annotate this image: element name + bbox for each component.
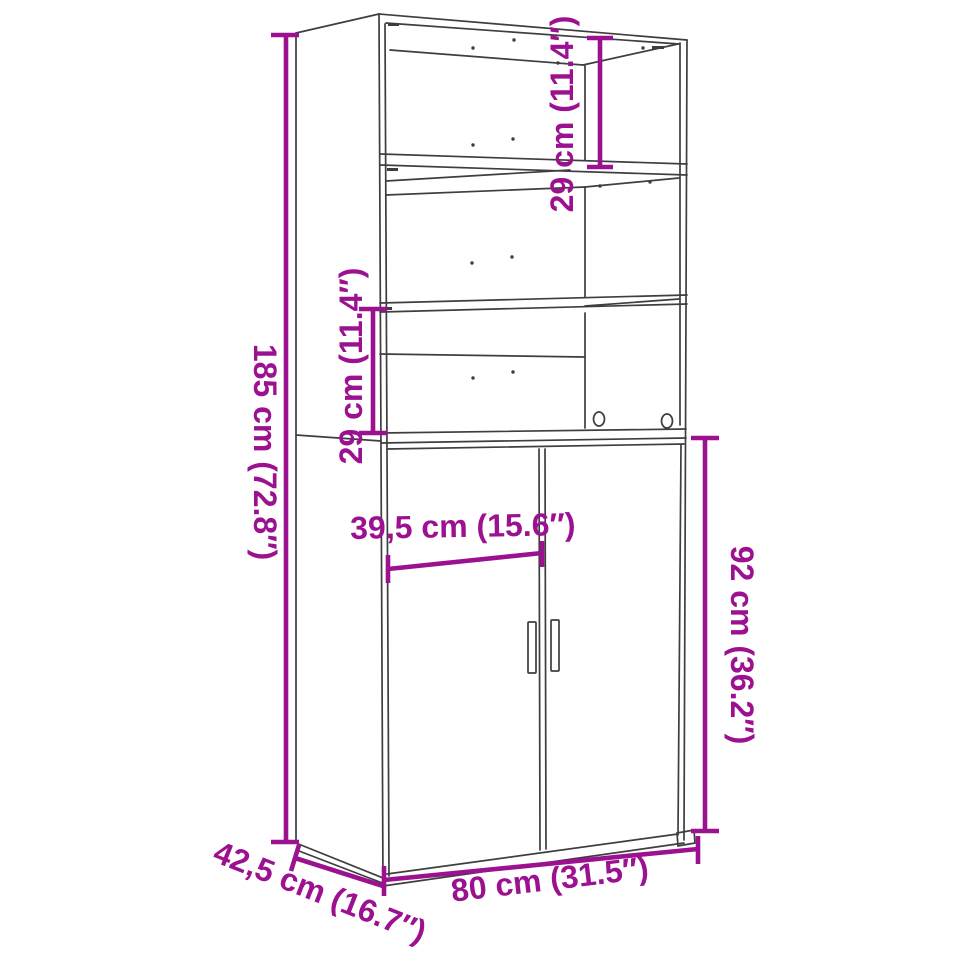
left-door-handle bbox=[528, 622, 536, 673]
right-door-right-edge bbox=[678, 445, 681, 835]
cam-dash bbox=[387, 168, 398, 171]
right-door-handle bbox=[551, 620, 559, 671]
dim-label-total-depth: 42,5 cm (16.7″) bbox=[209, 834, 432, 950]
pin-dot bbox=[471, 143, 474, 146]
left-panel-top-edge bbox=[296, 14, 379, 33]
dim-label-middle-shelf-gap: 29 cm (11.4″) bbox=[333, 268, 369, 465]
pin-dot bbox=[511, 137, 514, 140]
pin-dot bbox=[470, 261, 473, 264]
pin-dot bbox=[648, 180, 651, 183]
pin-dot bbox=[512, 38, 515, 41]
dim-label-total-height: 185 cm (72.8″) bbox=[247, 344, 283, 560]
dimension-lines bbox=[271, 35, 719, 896]
fitting-hole-right bbox=[662, 414, 673, 428]
front-left-edge-outer bbox=[379, 14, 383, 886]
door-top-edge bbox=[387, 444, 684, 449]
front-left-edge-inner bbox=[385, 24, 389, 876]
product-dimension-image: 185 cm (72.8″) 29 cm (11.4″) 29 cm (11.4… bbox=[0, 0, 955, 955]
dim-line-door-width bbox=[388, 541, 542, 583]
pin-dot bbox=[471, 46, 474, 49]
dimension-diagram-svg: 185 cm (72.8″) 29 cm (11.4″) 29 cm (11.4… bbox=[0, 0, 955, 955]
front-right-edge-outer bbox=[684, 40, 687, 840]
dim-line-lower-cabinet-height bbox=[691, 438, 719, 831]
lower-unit-top-edge bbox=[381, 438, 686, 443]
shelf-a-front-bottom-edge bbox=[380, 165, 687, 175]
dim-label-door-width: 39,5 cm (15.6″) bbox=[350, 506, 576, 546]
fitting-marks bbox=[381, 23, 664, 380]
dim-label-upper-shelf-gap: 29 cm (11.4″) bbox=[544, 16, 580, 213]
shelf-a-front-top-edge bbox=[380, 154, 687, 164]
fitting-hole-left bbox=[594, 412, 605, 426]
pin-dot bbox=[471, 376, 474, 379]
dim-label-total-width: 80 cm (31.5″) bbox=[449, 849, 650, 908]
pin-dot bbox=[510, 255, 513, 258]
upper-unit-bottom-edge bbox=[381, 429, 686, 433]
top-front-edge bbox=[379, 14, 687, 40]
cam-dash bbox=[388, 23, 399, 26]
cam-dash bbox=[652, 46, 664, 49]
shelf-a-underside-line bbox=[386, 170, 570, 181]
dim-line-upper-shelf-gap bbox=[587, 38, 613, 167]
back-panel-bottom-line bbox=[380, 354, 584, 357]
pin-dot bbox=[598, 184, 601, 187]
dimension-labels: 185 cm (72.8″) 29 cm (11.4″) 29 cm (11.4… bbox=[209, 16, 760, 950]
pin-dot bbox=[511, 370, 514, 373]
dim-label-lower-cabinet-height: 92 cm (36.2″) bbox=[724, 546, 760, 745]
pin-dot bbox=[641, 46, 644, 49]
shelf-b-front-bottom-edge bbox=[380, 304, 687, 312]
